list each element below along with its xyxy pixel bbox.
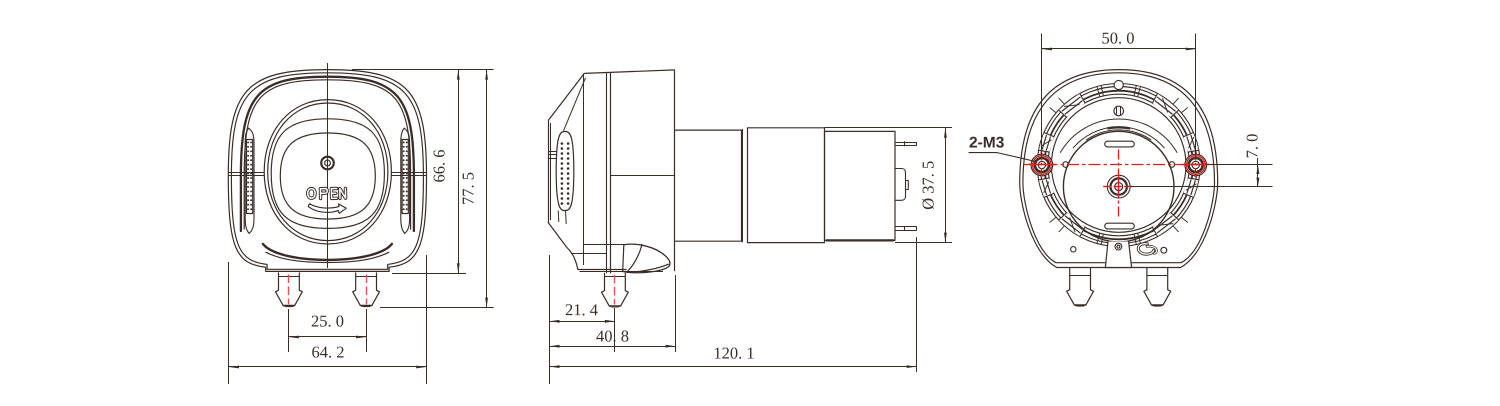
svg-text:64. 2: 64. 2 <box>311 342 344 361</box>
svg-text:40. 8: 40. 8 <box>596 326 629 345</box>
svg-text:Ø 37. 5: Ø 37. 5 <box>918 161 937 210</box>
svg-text:77. 5: 77. 5 <box>459 172 478 205</box>
svg-text:50. 0: 50. 0 <box>1101 28 1134 47</box>
svg-text:2-M3: 2-M3 <box>969 135 1005 152</box>
svg-text:21. 4: 21. 4 <box>565 300 598 319</box>
svg-text:120. 1: 120. 1 <box>713 343 754 362</box>
svg-text:7. 0: 7. 0 <box>1243 134 1262 159</box>
svg-text:25. 0: 25. 0 <box>311 311 344 330</box>
svg-text:66. 6: 66. 6 <box>430 150 449 183</box>
